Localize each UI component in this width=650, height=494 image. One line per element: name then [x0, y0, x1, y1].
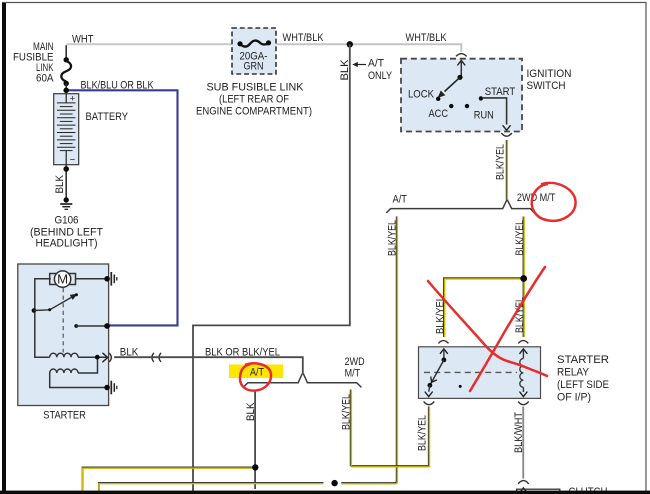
svg-text:WHT/BLK: WHT/BLK	[406, 32, 447, 44]
svg-text:BLK: BLK	[339, 59, 351, 80]
svg-text:M/T: M/T	[345, 368, 361, 380]
svg-text:BLK/YEL: BLK/YEL	[417, 415, 429, 451]
svg-text:RUN: RUN	[474, 110, 494, 122]
svg-text:LOCK: LOCK	[408, 89, 434, 101]
svg-text:2WD M/T: 2WD M/T	[517, 192, 556, 204]
svg-text:GRN: GRN	[244, 61, 264, 73]
svg-text:BLK/YEL: BLK/YEL	[341, 394, 353, 430]
svg-text:A/T: A/T	[393, 193, 408, 205]
svg-text:START: START	[485, 86, 516, 98]
svg-text:SUB FUSIBLE LINK: SUB FUSIBLE LINK	[207, 82, 304, 94]
svg-text:BLK/YEL: BLK/YEL	[386, 220, 398, 256]
svg-text:SWITCH: SWITCH	[527, 80, 566, 92]
svg-text:M: M	[57, 273, 68, 287]
svg-text:WHT/BLK: WHT/BLK	[283, 32, 324, 44]
svg-text:A/T: A/T	[250, 366, 264, 378]
svg-text:STARTER: STARTER	[43, 409, 86, 421]
svg-text:STARTER: STARTER	[557, 354, 609, 366]
svg-text:BATTERY: BATTERY	[86, 111, 129, 123]
svg-text:HEADLIGHT): HEADLIGHT)	[36, 238, 98, 250]
svg-text:BLK: BLK	[245, 402, 257, 421]
svg-text:ONLY: ONLY	[368, 70, 392, 82]
svg-text:A/T: A/T	[368, 58, 384, 70]
svg-text:G106: G106	[55, 214, 79, 226]
svg-text:2WD: 2WD	[345, 356, 365, 368]
svg-text:60A: 60A	[36, 72, 54, 84]
svg-text:OF I/P): OF I/P)	[557, 392, 591, 404]
svg-text:BLK/WHT: BLK/WHT	[513, 412, 525, 453]
svg-text:(LEFT SIDE: (LEFT SIDE	[557, 379, 609, 391]
svg-text:BLK/YEL: BLK/YEL	[514, 220, 526, 256]
svg-text:ACC: ACC	[429, 108, 449, 120]
svg-text:IGNITION: IGNITION	[527, 68, 572, 80]
svg-text:BLK: BLK	[54, 175, 66, 194]
svg-text:WHT: WHT	[72, 34, 94, 46]
svg-text:BLK/YEL: BLK/YEL	[495, 144, 507, 180]
svg-text:−: −	[70, 155, 76, 166]
svg-text:RELAY: RELAY	[557, 367, 589, 379]
svg-text:(LEFT REAR OF: (LEFT REAR OF	[219, 94, 289, 106]
svg-text:ENGINE COMPARTMENT): ENGINE COMPARTMENT)	[196, 106, 312, 118]
